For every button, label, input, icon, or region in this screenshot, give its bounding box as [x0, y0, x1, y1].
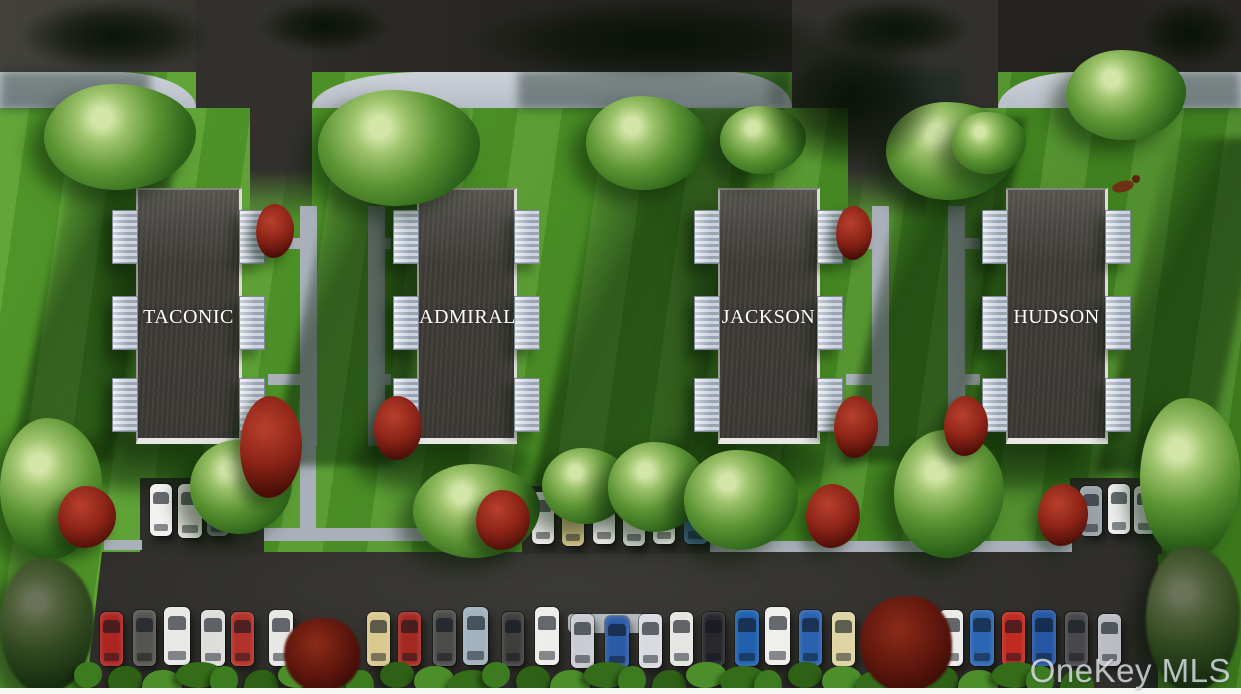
building-label: HUDSON	[1008, 306, 1105, 329]
car	[100, 612, 123, 666]
deer-head	[1132, 175, 1140, 183]
car	[164, 607, 190, 665]
building-taconic: TACONIC	[136, 188, 242, 444]
walkway-stub	[385, 238, 391, 249]
driveway-left	[250, 108, 312, 220]
car	[639, 614, 662, 668]
car	[1108, 484, 1130, 534]
porch-roof	[239, 296, 265, 350]
car	[670, 612, 693, 666]
deer	[1108, 172, 1142, 198]
building-label: TACONIC	[138, 306, 239, 329]
porch-roof	[694, 210, 720, 264]
porch-roof	[514, 210, 540, 264]
site-plan: OneKey MLS TACONICADMIRALJACKSONHUDSON	[0, 0, 1241, 694]
car	[970, 610, 994, 666]
car	[765, 607, 790, 665]
walkway	[104, 540, 142, 550]
car	[571, 614, 594, 668]
walkway-stub	[846, 374, 872, 385]
walkway	[300, 446, 316, 532]
walkway-stub	[385, 374, 391, 385]
car	[463, 607, 488, 665]
car	[502, 612, 524, 666]
porch-roof	[694, 378, 720, 432]
tree-canopy-shadow	[1140, 0, 1241, 66]
car	[231, 612, 254, 666]
building-label: ADMIRAL	[419, 306, 514, 329]
walkway-stub	[268, 374, 300, 385]
porch-roof	[112, 210, 138, 264]
car	[150, 484, 172, 536]
car	[433, 610, 456, 666]
porch-roof	[393, 210, 419, 264]
watermark: OneKey MLS	[1030, 652, 1231, 690]
car	[201, 610, 225, 666]
car	[605, 616, 629, 668]
car	[367, 612, 390, 666]
porch-roof	[694, 296, 720, 350]
car	[398, 612, 421, 666]
porch-roof	[514, 296, 540, 350]
car	[799, 610, 822, 666]
porch-roof	[1105, 296, 1131, 350]
porch-roof	[112, 378, 138, 432]
tree-canopy-shadow	[820, 0, 970, 58]
porch-roof	[393, 296, 419, 350]
car	[133, 610, 156, 666]
walkway-stub	[965, 238, 980, 249]
red-maple-tree	[860, 596, 952, 692]
porch-roof	[982, 210, 1008, 264]
car	[1002, 612, 1025, 666]
building-label: JACKSON	[720, 306, 817, 329]
porch-roof	[514, 378, 540, 432]
deer-body	[1111, 179, 1135, 195]
porch-roof	[982, 296, 1008, 350]
car	[702, 612, 725, 666]
car	[535, 607, 559, 665]
tree-canopy-shadow	[20, 0, 210, 72]
porch-roof	[817, 296, 843, 350]
car	[735, 610, 759, 666]
building-hudson: HUDSON	[1006, 188, 1108, 444]
building-admiral: ADMIRAL	[417, 188, 517, 444]
tree-canopy-shadow	[260, 0, 390, 52]
red-maple-tree	[284, 618, 360, 692]
porch-roof	[1105, 210, 1131, 264]
car	[832, 612, 855, 666]
porch-roof	[1105, 378, 1131, 432]
walkway-stub	[965, 374, 980, 385]
building-walkway	[300, 206, 317, 446]
porch-roof	[112, 296, 138, 350]
building-jackson: JACKSON	[718, 188, 820, 444]
